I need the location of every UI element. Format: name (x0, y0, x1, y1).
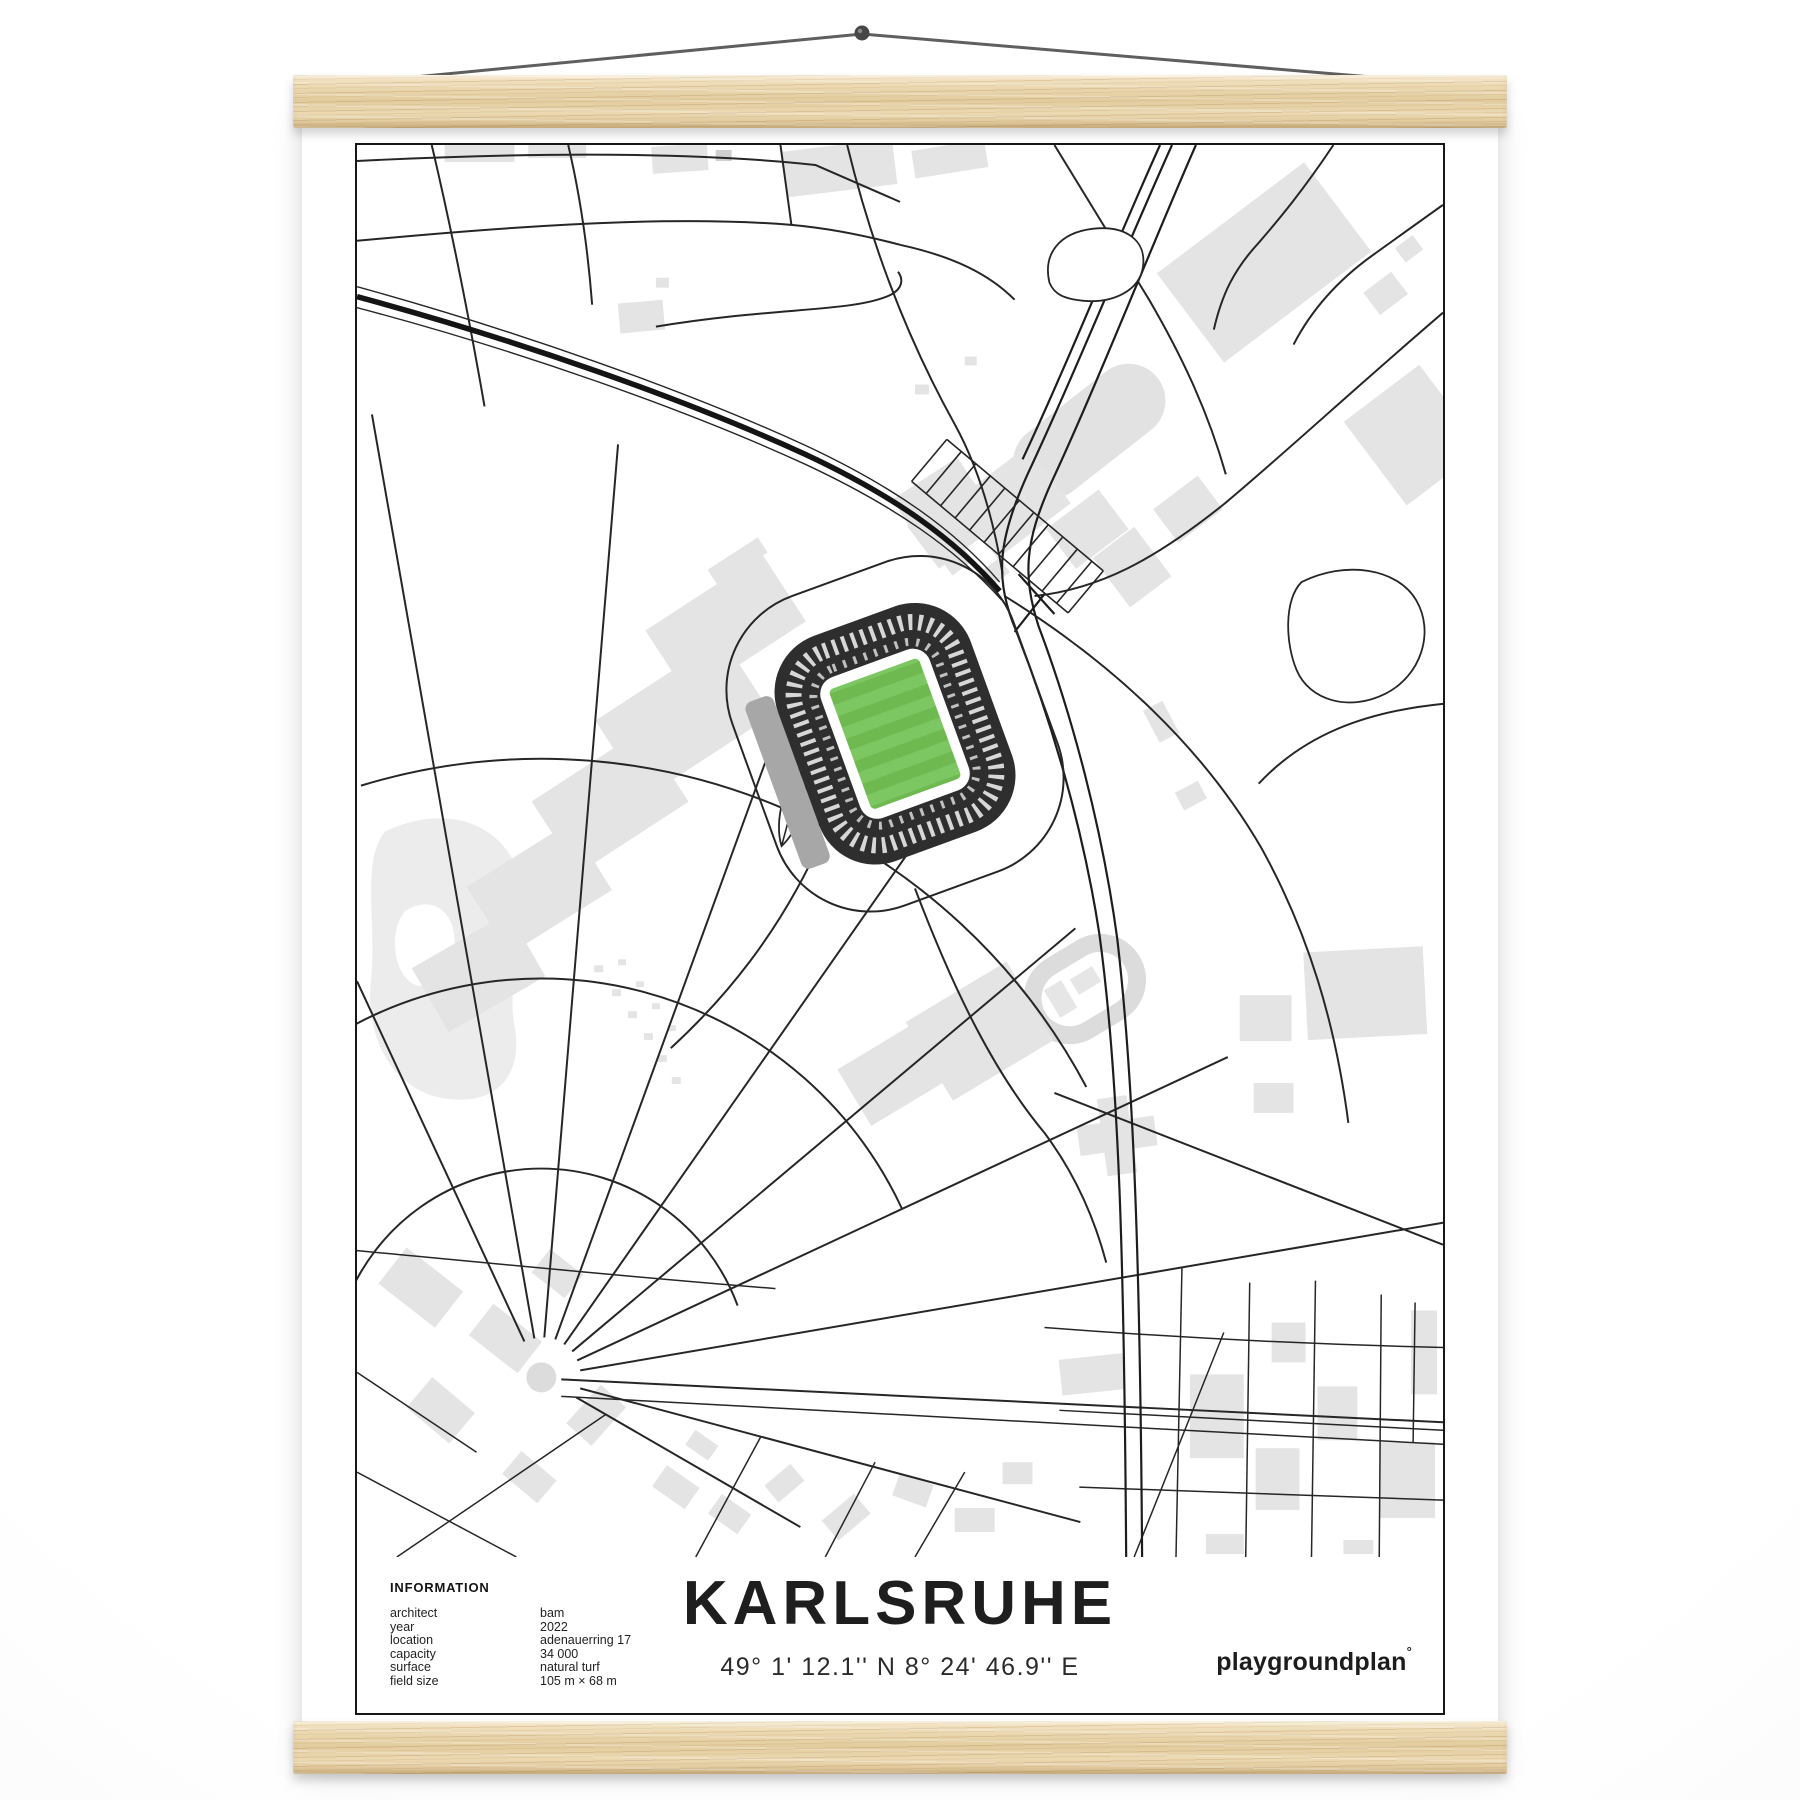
poster-mockup-scene: INFORMATION architect bam year 2022 loca… (0, 0, 1800, 1800)
brand-name: playgroundplan (1216, 1648, 1406, 1676)
poster-hanger-rail-bottom (293, 1721, 1507, 1774)
poster: INFORMATION architect bam year 2022 loca… (302, 100, 1498, 1760)
roundabout (526, 1362, 556, 1392)
map-canvas (357, 145, 1443, 1557)
brand-logo: playgroundplan° (1216, 1644, 1412, 1677)
nail-highlight (858, 29, 862, 33)
nail-icon (855, 26, 870, 41)
poster-title: KARLSRUHE (357, 1568, 1443, 1639)
allotments (594, 959, 681, 1084)
poster-hanger-rail-top (293, 75, 1507, 128)
brand-degree-mark: ° (1407, 1644, 1412, 1659)
city-map (357, 145, 1443, 1557)
